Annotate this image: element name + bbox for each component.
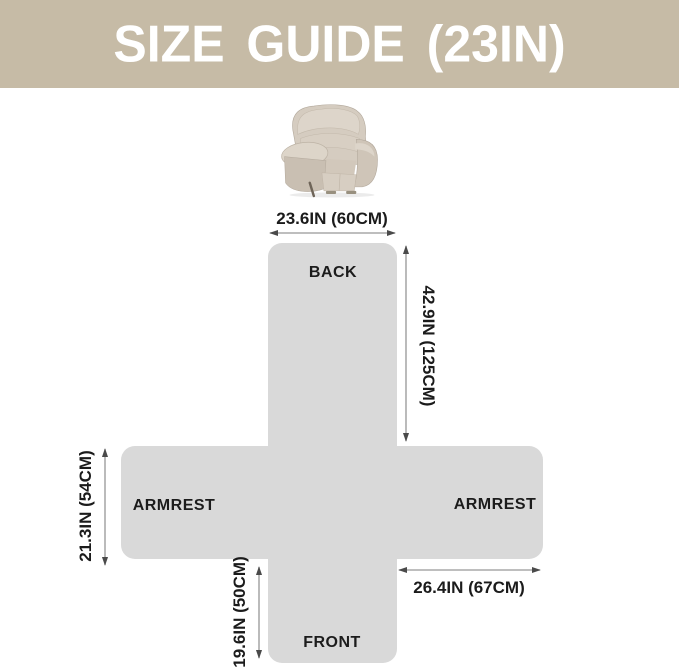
panel-label-armrest-left: ARMREST bbox=[133, 497, 216, 515]
measurement-label-armrest-length: 26.4IN (67CM) bbox=[413, 578, 524, 598]
recliner-chair-image bbox=[273, 102, 387, 198]
size-guide-infographic: SIZE GUIDE (23IN) bbox=[0, 0, 679, 667]
page-title: SIZE GUIDE (23IN) bbox=[113, 14, 565, 74]
measurement-label-armrest-width: 21.3IN (54CM) bbox=[76, 450, 96, 561]
measurement-label-back-width: 23.6IN (60CM) bbox=[276, 209, 387, 229]
size-guide-banner: SIZE GUIDE (23IN) bbox=[0, 0, 679, 88]
panel-label-armrest-right: ARMREST bbox=[454, 496, 537, 514]
measurement-label-front-length: 19.6IN (50CM) bbox=[230, 556, 250, 667]
panel-label-back: BACK bbox=[309, 264, 357, 282]
panel-label-front: FRONT bbox=[303, 634, 361, 652]
measurement-label-back-length: 42.9IN (125CM) bbox=[418, 286, 438, 407]
